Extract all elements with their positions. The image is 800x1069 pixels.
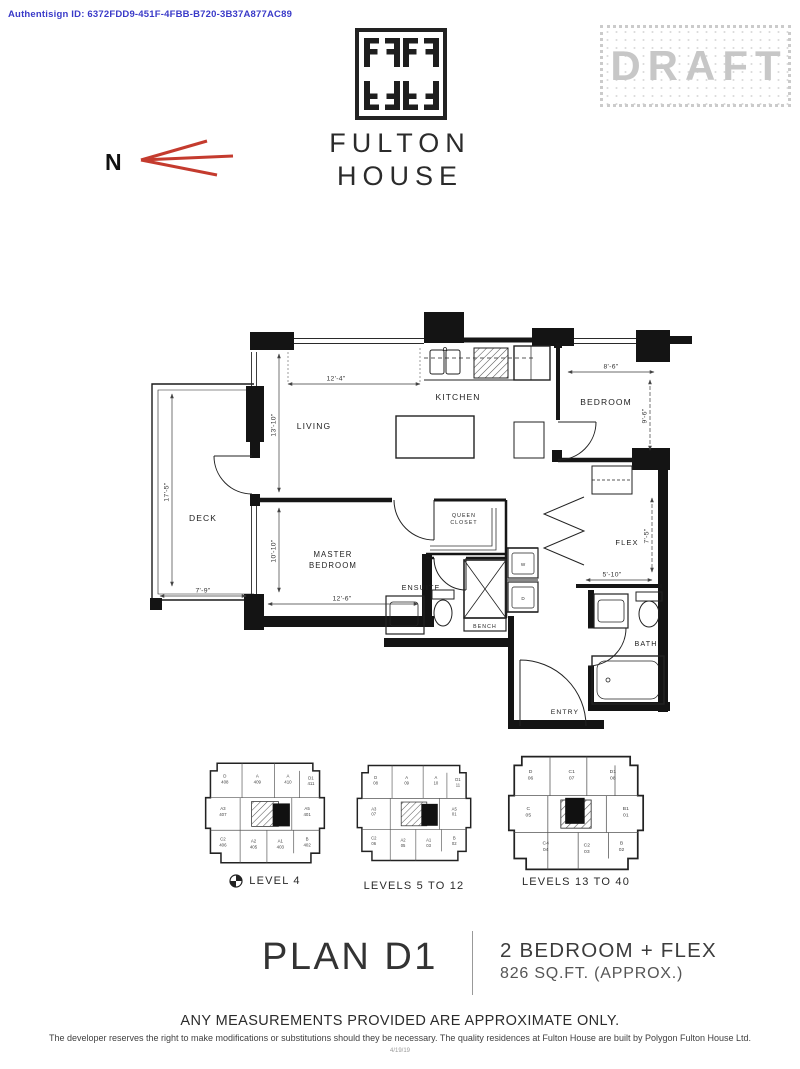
room-label-flex: FLEX [615, 538, 638, 547]
unit-number: 408 [221, 779, 229, 784]
keyplan-caption-text: LEVELS 13 TO 40 [522, 876, 630, 888]
cooktop [474, 348, 508, 378]
fulton-house-logo [354, 27, 448, 121]
north-arrow: N [95, 132, 245, 184]
unit-number: 409 [254, 779, 262, 784]
unit-label: D [374, 775, 377, 780]
unit-label: A3 [220, 806, 226, 811]
room-label-kitchen: KITCHEN [435, 392, 480, 402]
dim-living-width: 12'-4" [326, 376, 345, 383]
keyplan-caption-text: LEVELS 5 TO 12 [364, 880, 465, 892]
kitchen-sink [430, 348, 460, 375]
unit-label: D1 [308, 776, 314, 781]
unit-number: 402 [303, 843, 311, 848]
windows [252, 339, 637, 595]
plan-title: PLAN D1 [262, 936, 438, 979]
unit-label: A2 [251, 839, 257, 844]
dim-deck-width: 7'-9" [195, 588, 210, 595]
keyplan-level-4: D408 A409 A410 D1411 A3407 A5401 C2406 A… [198, 753, 332, 873]
unit-label: C2 [584, 843, 591, 849]
room-label-bath: BATH [634, 639, 657, 648]
unit-label: B1 [623, 806, 629, 812]
partition-walls [258, 340, 662, 618]
unit-number: 02 [452, 841, 457, 846]
dim-bedroom-height: 9'-6" [642, 408, 649, 423]
dimension-lines [160, 348, 654, 604]
unit-label: D1 [610, 769, 617, 775]
unit-number: 10 [434, 781, 439, 786]
unit-label: A5 [452, 806, 458, 811]
unit-label: A [405, 775, 408, 780]
north-label: N [105, 149, 122, 175]
keyplan-caption-levels-5-12: LEVELS 5 TO 12 [344, 880, 484, 892]
unit-number: 07 [569, 775, 575, 781]
dim-flex-width: 5'-10" [602, 572, 621, 579]
keyplan-caption-level4: LEVEL 4 [198, 874, 332, 888]
flex-niche [592, 466, 632, 494]
room-label-ensuite: ENSUITE [402, 583, 441, 592]
keyplan-levels-13-40: D06 C107 D108 C05 B101 C404 C203 B02 [498, 748, 654, 878]
unit-label: B [306, 837, 309, 842]
ensuite-vanity [386, 596, 424, 634]
measurements-note: ANY MEASUREMENTS PROVIDED ARE APPROXIMAT… [0, 1013, 800, 1029]
unit-number: 405 [250, 844, 258, 849]
room-label-bedroom: BEDROOM [580, 397, 632, 407]
unit-number: 08 [373, 781, 378, 786]
bath-door [588, 628, 626, 666]
shower [464, 560, 506, 631]
unit-number: 01 [452, 812, 457, 817]
bedroom-door [558, 422, 596, 460]
room-label-living: LIVING [297, 421, 331, 431]
unit-label: D [223, 774, 226, 779]
disclaimer: The developer reserves the right to make… [0, 1033, 800, 1043]
unit-number: 410 [284, 779, 292, 784]
unit-label: A [287, 774, 290, 779]
unit-number: 09 [404, 781, 409, 786]
kitchen-fixtures [396, 346, 550, 458]
unit-number: 03 [426, 843, 431, 848]
unit-number: 08 [610, 775, 616, 781]
plan-area: 826 SQ.FT. (APPROX.) [500, 965, 683, 983]
unit-number: 05 [401, 843, 406, 848]
master-door [394, 500, 434, 540]
dim-bedroom-width: 8'-6" [603, 364, 618, 371]
compass-icon [229, 874, 243, 888]
floorplan-page: Authentisign ID: 6372FDD9-451F-4FBB-B720… [0, 0, 800, 1069]
unit-label: B [453, 836, 456, 841]
unit-number: 11 [456, 782, 461, 787]
dim-master-width: 12'-6" [332, 596, 351, 603]
dim-living-height: 13'-10" [271, 413, 278, 436]
fridge [514, 346, 550, 380]
unit-label: C2 [371, 836, 377, 841]
unit-label: A [256, 774, 259, 779]
keyplan-levels-5-12: D08 A09 A10 D111 A307 A501 C206 A205 A10… [350, 755, 478, 871]
unit-number: 401 [303, 812, 311, 817]
fulton-logo-monogram [364, 38, 439, 110]
pantry [514, 422, 544, 458]
unit-label: A1 [426, 837, 432, 842]
north-arrow-icon [141, 141, 233, 175]
draft-stamp: DRAFT [600, 25, 791, 107]
bath-vanity [594, 594, 628, 628]
entry-door [520, 660, 586, 726]
bath-fixtures [592, 592, 664, 704]
unit-label: D [529, 769, 533, 775]
authentisign-id: Authentisign ID: 6372FDD9-451F-4FBB-B720… [8, 9, 292, 20]
highlighted-unit-d1 [273, 803, 290, 826]
unit-label: A2 [400, 837, 406, 842]
flex-folding-doors [544, 497, 584, 565]
unit-number: 406 [219, 843, 227, 848]
unit-number: 06 [528, 775, 534, 781]
room-label-entry: ENTRY [551, 709, 579, 716]
dim-master-height: 10'-10" [271, 539, 278, 562]
room-label-deck: DECK [189, 513, 217, 523]
unit-number: 403 [277, 844, 285, 849]
doors [214, 422, 626, 726]
dryer-label: D [521, 596, 525, 601]
unit-label: C1 [568, 769, 575, 775]
room-label-closet-2: CLOSET [450, 520, 477, 526]
unit-number: 04 [543, 847, 549, 853]
brand-line-house: HOUSE [290, 160, 510, 193]
unit-label: A1 [278, 839, 284, 844]
keyplan-caption-levels-13-40: LEVELS 13 TO 40 [496, 876, 656, 888]
unit-number: 03 [584, 849, 590, 855]
unit-number: 02 [619, 847, 625, 853]
unit-number: 407 [219, 812, 227, 817]
unit-number: 05 [526, 812, 532, 818]
unit-label: D1 [455, 777, 461, 782]
washer-label: W [521, 562, 526, 567]
unit-number: 411 [307, 781, 315, 786]
unit-label: A [435, 775, 438, 780]
dimension-texts: 12'-4" 13'-10" 17'-5" 7'-9" 8'-6" 9'-6" … [164, 364, 651, 603]
highlighted-unit-d1 [421, 804, 437, 826]
brand-line-fulton: FULTON [290, 127, 510, 160]
unit-label: C2 [220, 837, 226, 842]
floor-plan: 12'-4" 13'-10" 17'-5" 7'-9" 8'-6" 9'-6" … [120, 295, 720, 745]
unit-label: C [527, 806, 531, 812]
brand-name: FULTON HOUSE [290, 127, 510, 193]
plan-info-divider [472, 931, 473, 995]
unit-label: A3 [371, 806, 377, 811]
room-label-closet-1: QUEEN [452, 513, 476, 519]
dim-flex-height: 7'-5" [644, 528, 651, 543]
room-label-master-1: MASTER [313, 550, 352, 559]
ensuite-toilet [432, 590, 454, 626]
unit-number: 06 [371, 841, 376, 846]
dim-deck-height: 17'-5" [164, 482, 171, 501]
kitchen-island [396, 416, 474, 458]
plan-type: 2 BEDROOM + FLEX [500, 939, 717, 963]
keyplan-caption-text: LEVEL 4 [249, 875, 300, 887]
highlighted-unit-d1 [565, 798, 585, 824]
doc-ref: 4/19/19 [0, 1048, 800, 1054]
unit-label: A5 [304, 806, 310, 811]
room-label-master-2: BEDROOM [309, 561, 357, 570]
unit-label: B [620, 840, 624, 846]
draft-text: DRAFT [603, 42, 787, 90]
room-label-bench: BENCH [473, 624, 497, 630]
unit-number: 01 [623, 812, 629, 818]
deck-door [214, 456, 252, 494]
unit-label: C4 [542, 840, 549, 846]
unit-number: 07 [371, 812, 376, 817]
